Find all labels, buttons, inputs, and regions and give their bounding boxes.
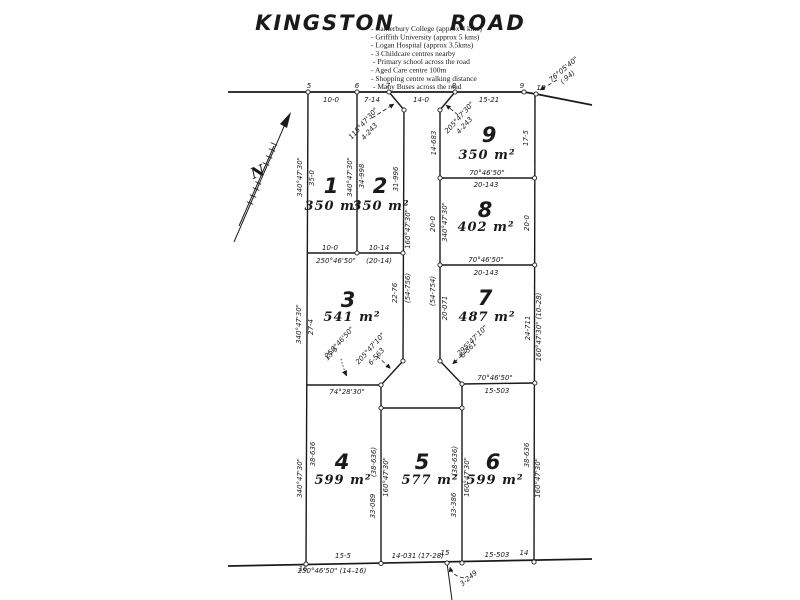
point-label: 5 (307, 82, 312, 90)
bearing: 160°47'30" (382, 457, 390, 497)
dimension: 10-0 (322, 244, 338, 252)
dimension: 10-0 (323, 96, 339, 104)
dimension: 22-76 (391, 282, 399, 303)
subdivision-plan: KINGSTON ROAD - Canterbury College (appr… (0, 0, 800, 600)
lot-9-number: 9 (482, 123, 497, 147)
dimension: 10-14 (369, 244, 389, 252)
dimension: 20-143 (474, 269, 499, 277)
splay-line (381, 361, 403, 385)
lot-5-area: 577 m² (401, 473, 458, 488)
lot-5-number: 5 (415, 450, 430, 474)
north-arrow: N (234, 112, 291, 242)
plan-drawing: KINGSTON ROAD - Canterbury College (appr… (0, 0, 800, 600)
lot-4-number: 4 (334, 450, 350, 474)
dimension: 20-143 (474, 181, 499, 189)
lot-1-number: 1 (324, 174, 339, 198)
dimension: 31-996 (392, 166, 400, 191)
lot-2-area: 350 m² (352, 199, 409, 214)
bearing: 340°47'30" (296, 458, 304, 498)
dimension: 14-031 (392, 552, 417, 560)
bearing: 250°46'50" (316, 257, 356, 265)
dimension: 20-0 (523, 215, 531, 231)
dimension: 38-636 (523, 442, 531, 467)
bearing: 340°47'30" (296, 157, 304, 197)
bearing: 70°46'50" (468, 256, 503, 264)
point-label: 10 (537, 84, 546, 92)
leader-line (446, 105, 458, 115)
lot-6-number: 6 (486, 450, 501, 474)
splay-line (440, 361, 462, 384)
dimension: 3-249 (458, 569, 479, 589)
dimension: 15-503 (485, 551, 510, 559)
dimension: 15-5 (335, 552, 351, 560)
dimension: 6-561 (459, 340, 479, 360)
adjoining-boundary-line (447, 563, 452, 600)
dimension: 24-711 (524, 316, 532, 341)
dimension: 15-21 (479, 96, 499, 104)
dimension: 34-998 (358, 163, 366, 188)
dimension: 14-0 (413, 96, 429, 104)
dimension: (20-14) (366, 257, 392, 265)
bearing: 340°47'30" (346, 157, 354, 197)
point-label: 9 (520, 82, 525, 90)
bearing: 160°47'30" (404, 209, 412, 249)
dimension: 35-0 (308, 170, 316, 186)
lot-8-number: 8 (478, 198, 493, 222)
point-label: 15 (441, 549, 450, 557)
leader-line (341, 359, 347, 376)
dimension: 14-683 (430, 131, 438, 156)
lot-3-area: 541 m² (323, 310, 380, 325)
lot-9-area: 350 m² (458, 148, 515, 163)
dimension: 33-386 (450, 492, 458, 517)
dimension: (54-756) (404, 273, 412, 304)
dimension: 38-636 (309, 441, 317, 466)
rear-boundary-line (228, 559, 592, 566)
point-label: 7 (386, 82, 391, 90)
bearing: 160°47'30" (10–28) (535, 292, 543, 361)
dimension: 7-14 (364, 96, 380, 104)
north-arrow-shaft-parallel (239, 146, 274, 226)
bearing: 340°47'30" (295, 304, 303, 344)
bearing: 160°47'30" (534, 458, 542, 498)
north-arrow-head (280, 112, 291, 128)
point-label: 8 (452, 82, 457, 90)
dimension: 15-503 (485, 387, 510, 395)
lot-8-area: 402 m² (457, 220, 514, 235)
splay-line (440, 92, 455, 110)
dimension: 33-089 (369, 493, 377, 518)
point-label: 16 (299, 565, 308, 573)
dimension: 27-4 (307, 319, 315, 335)
bearing: 74°28'30" (329, 388, 364, 396)
lot-3-number: 3 (341, 288, 356, 312)
lot-7-area: 487 m² (458, 310, 515, 325)
lot-7-number: 7 (478, 286, 493, 310)
lot-6-area: 599 m² (466, 473, 523, 488)
dimension: 20-071 (441, 296, 449, 321)
dimension: (38-636) (451, 446, 459, 477)
north-arrow-shaft (234, 122, 286, 242)
leader-line (450, 567, 464, 578)
bearing: 250°46'50" (14–16) (298, 567, 367, 575)
bearing: 70°46'50" (477, 374, 512, 382)
bearing: 340°47'30" (441, 202, 449, 242)
lot-2-number: 2 (373, 174, 388, 198)
dimension: 17-5 (522, 130, 530, 146)
boundary-line (462, 383, 535, 384)
bearing: 70°46'50" (469, 169, 504, 177)
point-label: 14 (520, 549, 529, 557)
lot-4-area: 599 m² (314, 473, 371, 488)
dimension: (54-754) (429, 276, 437, 307)
splay-line (389, 92, 404, 110)
dimension: 20-0 (429, 216, 437, 232)
point-label: 6 (355, 82, 360, 90)
